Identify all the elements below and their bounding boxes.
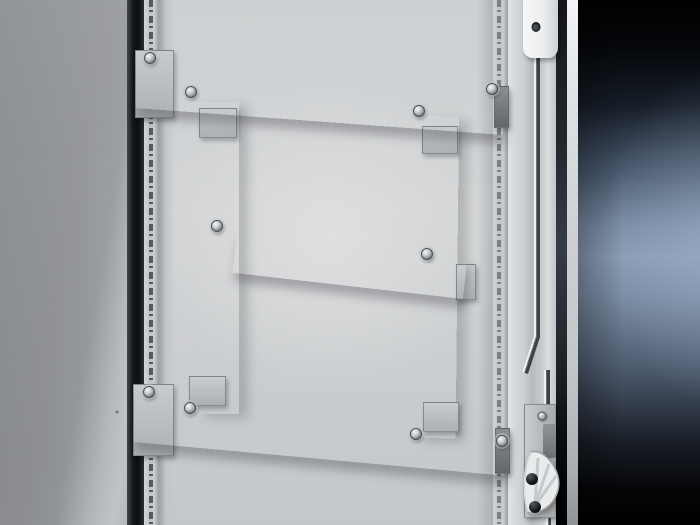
rail-flange bbox=[136, 62, 137, 69]
dark-background bbox=[576, 0, 700, 525]
rail-vertical-left bbox=[196, 102, 239, 414]
guide-hole bbox=[532, 22, 541, 32]
screw-silver bbox=[185, 86, 197, 98]
screw-silver bbox=[143, 386, 155, 398]
screw-silver bbox=[413, 105, 425, 117]
screw-silver bbox=[421, 248, 433, 260]
rail-flange bbox=[236, 232, 237, 239]
screw-black bbox=[529, 501, 541, 513]
photo-canvas bbox=[0, 0, 700, 525]
screw-silver-small bbox=[538, 412, 547, 421]
rail-flange bbox=[135, 396, 136, 403]
screw-silver bbox=[486, 83, 498, 95]
screw-silver bbox=[144, 52, 156, 64]
door-outer-edge bbox=[567, 0, 578, 525]
rod-guide-bracket bbox=[523, 0, 558, 58]
screw-silver bbox=[410, 428, 422, 440]
screw-silver bbox=[211, 220, 223, 232]
enclosure-side-panel bbox=[0, 0, 128, 525]
lock-rod-upper bbox=[534, 56, 540, 338]
lock-cam-guide bbox=[518, 446, 566, 520]
screw-silver bbox=[496, 435, 508, 447]
screw-silver bbox=[184, 402, 196, 414]
screw-black bbox=[526, 473, 538, 485]
screw-dot bbox=[116, 411, 119, 414]
rail-dark-edge bbox=[236, 232, 237, 237]
